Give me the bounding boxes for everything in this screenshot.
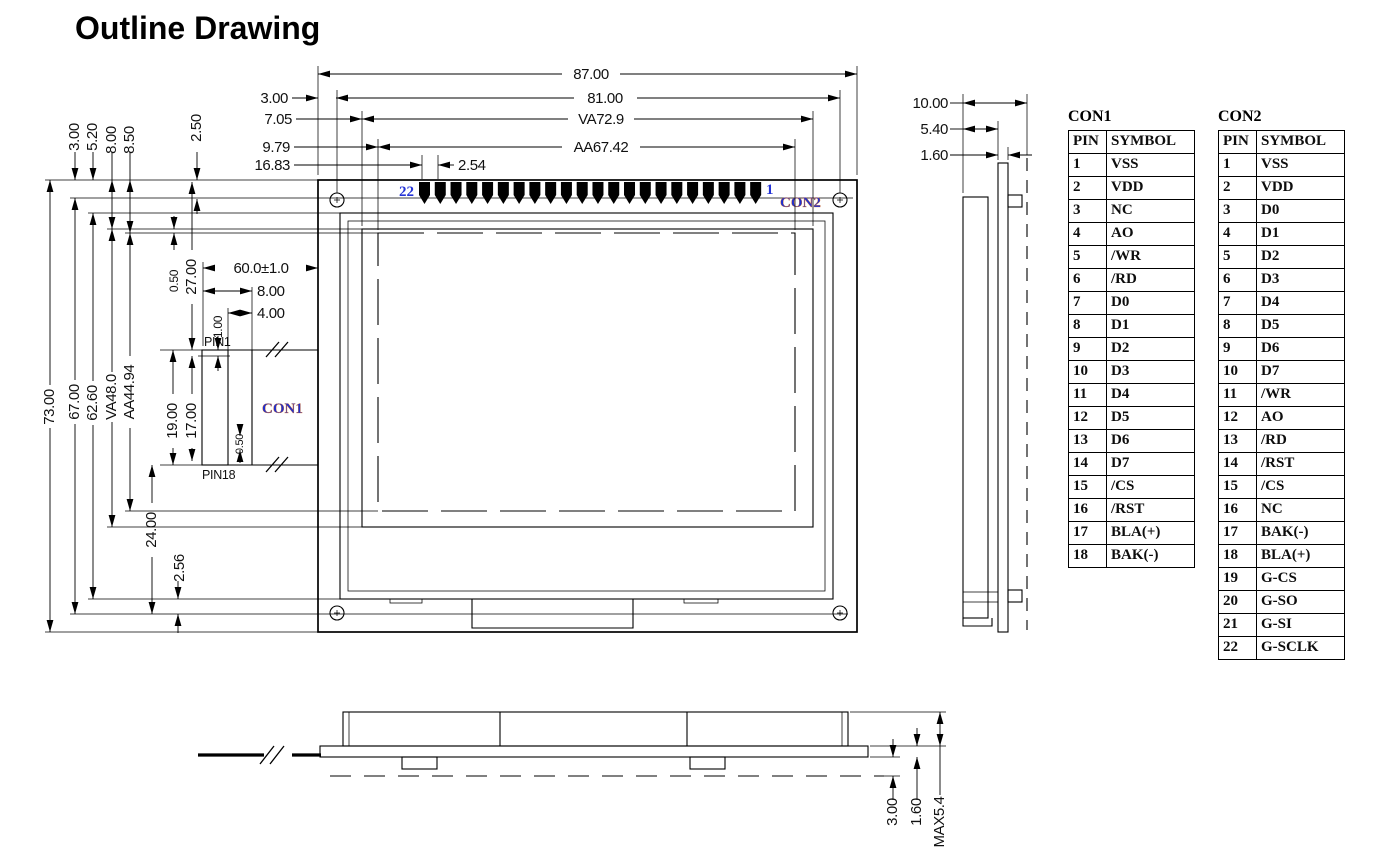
pin-cell: 6 [1069, 269, 1107, 292]
pin-row: 8D1 [1069, 315, 1195, 338]
dim-aa-width: AA67.42 [574, 139, 629, 156]
pin-cell: 11 [1219, 384, 1257, 407]
side-bracket [963, 618, 992, 626]
dim-total-depth: 10.00 [912, 95, 948, 112]
pin-cell: VSS [1107, 154, 1195, 177]
dim-display-depth: 5.40 [920, 121, 948, 138]
bottom-view: 3.00 1.60 MAX5.4 [198, 712, 948, 847]
pin-cell: AO [1257, 407, 1345, 430]
pin-cell: G-SI [1257, 614, 1345, 637]
pin-cell: /CS [1257, 476, 1345, 499]
column-header: SYMBOL [1257, 131, 1345, 154]
dim-max-height: MAX5.4 [931, 796, 948, 847]
connector-pin-pad [419, 182, 430, 204]
pin-cell: G-SCLK [1257, 637, 1345, 660]
connector-pin-pad [561, 182, 572, 204]
pin-cell: /WR [1107, 246, 1195, 269]
pin-cell: 1 [1069, 154, 1107, 177]
dim-fpc-length: 60.0±1.0 [233, 260, 288, 277]
pin1-number: 1 [766, 182, 774, 198]
dim-clearance: 3.00 [884, 798, 901, 826]
pin-cell: D0 [1107, 292, 1195, 315]
pin-cell: BLA(+) [1257, 545, 1345, 568]
pin-row: 18BLA(+) [1219, 545, 1345, 568]
pin-row: 17BLA(+) [1069, 522, 1195, 545]
pin-row: 16NC [1219, 499, 1345, 522]
pin22-number: 22 [399, 184, 414, 200]
connector-pin-pad [514, 182, 525, 204]
pin-row: 10D7 [1219, 361, 1345, 384]
pin-cell: VSS [1257, 154, 1345, 177]
pin-cell: 17 [1219, 522, 1257, 545]
bezel-inner-edge [348, 221, 825, 591]
dim-va-left-offset: 7.05 [264, 111, 292, 128]
dim-aa-left-offset: 9.79 [262, 139, 290, 156]
pin-row: 5/WR [1069, 246, 1195, 269]
pin-cell: D5 [1107, 407, 1195, 430]
pin-cell: D1 [1257, 223, 1345, 246]
pin-cell: BAK(-) [1257, 522, 1345, 545]
pin-row: 12D5 [1069, 407, 1195, 430]
pin-cell: D6 [1107, 430, 1195, 453]
dim-hole-span: 81.00 [587, 90, 623, 107]
connector-pin-pad [640, 182, 651, 204]
display-bezel [340, 213, 833, 599]
connector-pin-pad [608, 182, 619, 204]
pin-cell: 14 [1069, 453, 1107, 476]
bottom-pcb [320, 746, 868, 757]
con1-table-title: CON1 [1068, 108, 1195, 126]
pin-cell: 15 [1069, 476, 1107, 499]
pin-cell: D3 [1257, 269, 1345, 292]
side-extension-lines [963, 94, 1027, 193]
pin-cell: 9 [1069, 338, 1107, 361]
pin-cell: VDD [1257, 177, 1345, 200]
connector-pin-pad [482, 182, 493, 204]
pin-row: 1VSS [1069, 154, 1195, 177]
connector-pin-pad [719, 182, 730, 204]
pin-cell: 8 [1069, 315, 1107, 338]
pin-cell: NC [1107, 200, 1195, 223]
dim-con1-pin-span: 19.00 [164, 403, 181, 439]
con1-table-block: CON1 PINSYMBOL1VSS2VDD3NC4AO5/WR6/RD7D08… [1068, 108, 1195, 568]
dim-va-width: VA72.9 [578, 111, 624, 128]
pin-cell: 13 [1069, 430, 1107, 453]
pin-cell: D7 [1257, 361, 1345, 384]
con1-label: CON1 [262, 401, 303, 417]
pin-row: 10D3 [1069, 361, 1195, 384]
dim-hole-top-offset: 2.50 [188, 114, 205, 142]
bottom-tab-left [402, 757, 437, 769]
side-tab-top [1008, 195, 1022, 207]
dim-va-top-offset: 8.00 [103, 126, 120, 154]
column-header: SYMBOL [1107, 131, 1195, 154]
pin-cell: D3 [1107, 361, 1195, 384]
connector-pin-pad [592, 182, 603, 204]
pin-cell: 16 [1219, 499, 1257, 522]
pin-cell: 2 [1219, 177, 1257, 200]
con2-pin-table: PINSYMBOL1VSS2VDD3D04D15D26D37D48D59D610… [1218, 130, 1345, 660]
pin-cell: 12 [1069, 407, 1107, 430]
pin-cell: 14 [1219, 453, 1257, 476]
pin-cell: /RST [1257, 453, 1345, 476]
side-tab-bottom [1008, 590, 1022, 602]
pin-cell: 4 [1069, 223, 1107, 246]
front-view-dimensions: 87.00 3.00 81.00 7.05 VA72.9 9.79 AA67.4… [41, 66, 857, 633]
column-header: PIN [1219, 131, 1257, 154]
con1-fpc: PIN1 PIN18 CON1 [202, 335, 318, 482]
pin-cell: NC [1257, 499, 1345, 522]
connector-pin-pad [466, 182, 477, 204]
bezel-bottom-notch [472, 599, 633, 628]
dim-pcb-thickness-side: 1.60 [920, 147, 948, 164]
header-row: PINSYMBOL [1219, 131, 1345, 154]
pin-row: 11/WR [1219, 384, 1345, 407]
bezel-tab-right [684, 599, 718, 603]
connector-pin-pad [703, 182, 714, 204]
bottom-extension-lines [850, 712, 946, 776]
pin-row: 14/RST [1219, 453, 1345, 476]
fpc-hatch [202, 350, 228, 465]
con2-pad-row [419, 182, 761, 204]
pin-cell: 21 [1219, 614, 1257, 637]
pin-cell: D1 [1107, 315, 1195, 338]
pin-cell: D0 [1257, 200, 1345, 223]
pin-row: 3NC [1069, 200, 1195, 223]
connector-pin-pad [451, 182, 462, 204]
dim-aa-top-offset: 8.50 [121, 126, 138, 154]
connector-pin-pad [671, 182, 682, 204]
connector-pin-pad [687, 182, 698, 204]
pin-row: 4D1 [1219, 223, 1345, 246]
pin-row: 4AO [1069, 223, 1195, 246]
pin-row: 15/CS [1069, 476, 1195, 499]
pin-cell: 8 [1219, 315, 1257, 338]
bottom-tab-right [690, 757, 725, 769]
pin-cell: 2 [1069, 177, 1107, 200]
pin-cell: 15 [1219, 476, 1257, 499]
dim-top-to-pin1: 27.00 [183, 259, 200, 295]
connector-pin-pad [734, 182, 745, 204]
pin-cell: /RD [1257, 430, 1345, 453]
pin-row: 2VDD [1069, 177, 1195, 200]
dim-fpc-width-outer: 8.00 [257, 283, 285, 300]
dim-pad-pitch: 2.54 [458, 157, 486, 174]
pin-row: 13/RD [1219, 430, 1345, 453]
pin-row: 8D5 [1219, 315, 1345, 338]
pin-cell: 18 [1069, 545, 1107, 568]
dim-bezel-to-hole: 2.56 [171, 554, 188, 582]
pin-cell: /RST [1107, 499, 1195, 522]
con2-table-title: CON2 [1218, 108, 1345, 126]
pin-cell: 5 [1219, 246, 1257, 269]
pin-row: 7D4 [1219, 292, 1345, 315]
dim-pin-pitch-small: 0.50 [234, 434, 246, 454]
pin-row: 15/CS [1219, 476, 1345, 499]
dim-pad-to-bottom-hole: 67.00 [66, 384, 83, 420]
connector-pin-pad [750, 182, 761, 204]
pin-row: 16/RST [1069, 499, 1195, 522]
outline-drawing-page: Outline Drawing 22 1 CON2 [0, 0, 1400, 862]
pin-cell: VDD [1107, 177, 1195, 200]
pin-row: 19G-CS [1219, 568, 1345, 591]
dim-gap-small-a: 0.50 [167, 269, 181, 292]
pin-cell: 10 [1219, 361, 1257, 384]
pin-cell: /CS [1107, 476, 1195, 499]
pin-cell: 7 [1219, 292, 1257, 315]
pin-row: 21G-SI [1219, 614, 1345, 637]
pin-row: 9D6 [1219, 338, 1345, 361]
pin-cell: 18 [1219, 545, 1257, 568]
pin-cell: D5 [1257, 315, 1345, 338]
pin-cell: G-SO [1257, 591, 1345, 614]
pin-cell: 17 [1069, 522, 1107, 545]
pin-row: 2VDD [1219, 177, 1345, 200]
bezel-tab-left [390, 599, 422, 603]
pin-row: 11D4 [1069, 384, 1195, 407]
pin-row: 12AO [1219, 407, 1345, 430]
pin-cell: D4 [1107, 384, 1195, 407]
pin-row: 6/RD [1069, 269, 1195, 292]
pin-cell: D6 [1257, 338, 1345, 361]
pin-cell: 12 [1219, 407, 1257, 430]
dim-con1-pin-span-inner: 17.00 [183, 403, 200, 439]
dim-aa-height: AA44.94 [121, 365, 138, 420]
pin-row: 3D0 [1219, 200, 1345, 223]
side-pcb [998, 163, 1008, 632]
con1-pin-table: PINSYMBOL1VSS2VDD3NC4AO5/WR6/RD7D08D19D2… [1068, 130, 1195, 568]
pin-cell: D4 [1257, 292, 1345, 315]
pin-row: 9D2 [1069, 338, 1195, 361]
pin-cell: 3 [1069, 200, 1107, 223]
viewing-area [362, 229, 813, 527]
pin-cell: 16 [1069, 499, 1107, 522]
dim-fpc-width-inner: 4.00 [257, 305, 285, 322]
dim-overall-width: 87.00 [573, 66, 609, 83]
dim-pin18-to-hole: 24.00 [143, 512, 160, 548]
connector-pin-pad [529, 182, 540, 204]
side-view: 10.00 5.40 1.60 [912, 94, 1032, 632]
pin-cell: D2 [1107, 338, 1195, 361]
page-title: Outline Drawing [75, 10, 320, 46]
pin-cell: /WR [1257, 384, 1345, 407]
pin-cell: AO [1107, 223, 1195, 246]
column-header: PIN [1069, 131, 1107, 154]
pin-cell: 10 [1069, 361, 1107, 384]
pin-cell: 20 [1219, 591, 1257, 614]
pin18-label: PIN18 [202, 468, 236, 482]
connector-pin-pad [545, 182, 556, 204]
pin-cell: 22 [1219, 637, 1257, 660]
pin-cell: D2 [1257, 246, 1345, 269]
extension-lines [45, 66, 857, 632]
pin-cell: 6 [1219, 269, 1257, 292]
pin-row: 1VSS [1219, 154, 1345, 177]
pin-row: 18BAK(-) [1069, 545, 1195, 568]
pin-cell: 7 [1069, 292, 1107, 315]
pin-cell: 4 [1219, 223, 1257, 246]
connector-pin-pad [624, 182, 635, 204]
pin-row: 13D6 [1069, 430, 1195, 453]
dim-pcb-thickness-bottom: 1.60 [908, 798, 925, 826]
pin-row: 17BAK(-) [1219, 522, 1345, 545]
con2-table-block: CON2 PINSYMBOL1VSS2VDD3D04D15D26D37D48D5… [1218, 108, 1345, 660]
pcb-outline [318, 180, 857, 632]
dim-pin1-inset: 1.00 [211, 315, 225, 338]
pin-row: 20G-SO [1219, 591, 1345, 614]
pin-cell: 1 [1219, 154, 1257, 177]
pin-row: 14D7 [1069, 453, 1195, 476]
dim-overall-height: 73.00 [41, 389, 58, 425]
dim-hole-edge-offset: 3.00 [260, 90, 288, 107]
pin-cell: 13 [1219, 430, 1257, 453]
dim-va-height: VA48.0 [103, 374, 120, 420]
pin-row: 7D0 [1069, 292, 1195, 315]
active-area-dashed [378, 233, 795, 511]
pin-cell: D7 [1107, 453, 1195, 476]
dim-bezel-top-offset: 5.20 [84, 123, 101, 151]
pin-row: 5D2 [1219, 246, 1345, 269]
pin-row: 22G-SCLK [1219, 637, 1345, 660]
pin-cell: 9 [1219, 338, 1257, 361]
dim-pad-left-offset: 16.83 [254, 157, 290, 174]
pin-cell: /RD [1107, 269, 1195, 292]
side-glass [963, 197, 988, 618]
pin-cell: 3 [1219, 200, 1257, 223]
pin-cell: BLA(+) [1107, 522, 1195, 545]
dim-bezel-height: 62.60 [84, 385, 101, 421]
pin-cell: G-CS [1257, 568, 1345, 591]
header-row: PINSYMBOL [1069, 131, 1195, 154]
mounting-holes [330, 193, 847, 620]
connector-pin-pad [498, 182, 509, 204]
pin-cell: 19 [1219, 568, 1257, 591]
pin-row: 6D3 [1219, 269, 1345, 292]
pin-cell: 11 [1069, 384, 1107, 407]
connector-pin-pad [577, 182, 588, 204]
pin-cell: BAK(-) [1107, 545, 1195, 568]
pin-cell: 5 [1069, 246, 1107, 269]
connector-pin-pad [435, 182, 446, 204]
connector-pin-pad [656, 182, 667, 204]
con2-label: CON2 [780, 195, 821, 211]
dim-pad-row-offset: 3.00 [66, 123, 83, 151]
bottom-frame [343, 712, 848, 746]
